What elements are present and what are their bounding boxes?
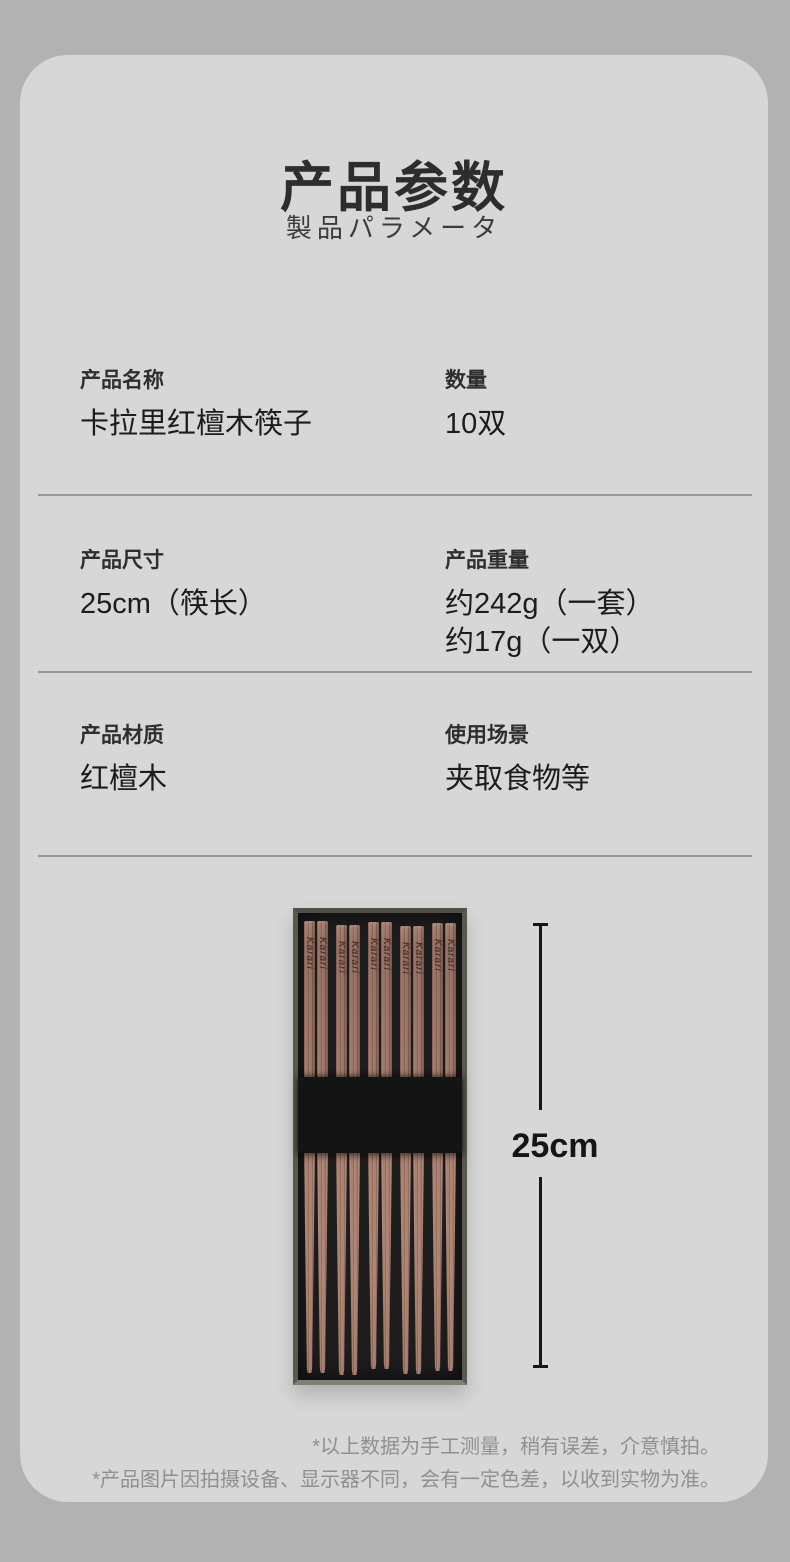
chopstick: Karari [317, 921, 328, 1083]
chopstick [368, 1151, 379, 1369]
chopstick: Karari [432, 923, 443, 1085]
chopstick-pair [368, 1151, 392, 1375]
spec-label: 产品尺寸 [80, 548, 267, 574]
brand-engraving: Karari [400, 942, 411, 975]
spec-value: 25cm（筷长） [80, 585, 267, 623]
chopstick [400, 1151, 411, 1374]
chopstick [336, 1151, 347, 1375]
brand-engraving: Karari [317, 937, 328, 970]
chopstick [317, 1151, 328, 1373]
spec-value: 夹取食物等 [445, 760, 590, 798]
spec-value: 约17g（一双） [445, 623, 655, 661]
dimension-line-lower-segment [539, 1177, 542, 1368]
chopstick-pair [336, 1151, 360, 1375]
chopstick [413, 1151, 424, 1374]
dimension-line-upper-segment [539, 923, 542, 1110]
row-divider [38, 671, 752, 673]
chopstick: Karari [304, 921, 315, 1083]
chopstick-pair: Karari Karari [368, 922, 392, 1088]
spec-cell-size: 产品尺寸 25cm（筷长） [80, 548, 267, 623]
spec-value: 卡拉里红檀木筷子 [80, 405, 312, 443]
spec-label: 使用场景 [445, 723, 590, 749]
brand-engraving: Karari [445, 939, 456, 972]
chopsticks-box: Karari Karari Karari Karari Karari Karar… [293, 908, 467, 1385]
chopsticks-handles: Karari Karari Karari Karari Karari Karar… [304, 921, 456, 1088]
chopstick: Karari [336, 925, 347, 1087]
chopstick-pair [304, 1151, 328, 1375]
spec-cell-quantity: 数量 10双 [445, 368, 506, 443]
row-divider [38, 855, 752, 857]
spec-label: 产品重量 [445, 548, 655, 574]
disclaimer-notes: *以上数据为手工测量，稍有误差，介意慎拍。 *产品图片因拍摄设备、显示器不同，会… [92, 1431, 720, 1497]
spec-value: 约242g（一套） [445, 585, 655, 623]
brand-engraving: Karari [432, 939, 443, 972]
spec-cell-material: 产品材质 红檀木 [80, 723, 167, 798]
chopstick: Karari [445, 923, 456, 1085]
dimension-line-bottom-cap [533, 1365, 548, 1368]
chopstick-pair: Karari Karari [336, 925, 360, 1088]
chopsticks-tips [304, 1151, 456, 1375]
chopstick: Karari [368, 922, 379, 1084]
spec-value: 红檀木 [80, 760, 167, 798]
spec-cell-usage: 使用场景 夹取食物等 [445, 723, 590, 798]
chopstick-pair [400, 1151, 424, 1375]
spec-label: 产品材质 [80, 723, 167, 749]
chopstick: Karari [400, 926, 411, 1088]
chopstick-pair [432, 1151, 456, 1375]
chopstick [304, 1151, 315, 1373]
brand-engraving: Karari [304, 937, 315, 970]
chopstick: Karari [349, 925, 360, 1087]
chopstick-pair: Karari Karari [432, 923, 456, 1088]
brand-engraving: Karari [381, 938, 392, 971]
brand-engraving: Karari [413, 942, 424, 975]
chopstick: Karari [413, 926, 424, 1088]
page-subtitle: 製品パラメータ [20, 208, 768, 245]
box-center-band [298, 1077, 462, 1153]
spec-value: 10双 [445, 405, 506, 443]
brand-engraving: Karari [336, 941, 347, 974]
spec-cell-weight: 产品重量 约242g（一套） 约17g（一双） [445, 548, 655, 661]
chopstick-pair: Karari Karari [304, 921, 328, 1088]
brand-engraving: Karari [349, 941, 360, 974]
chopstick [381, 1151, 392, 1369]
disclaimer-note: *产品图片因拍摄设备、显示器不同，会有一定色差，以收到实物为准。 [92, 1464, 720, 1497]
brand-engraving: Karari [368, 938, 379, 971]
chopstick [445, 1151, 456, 1371]
spec-label: 数量 [445, 368, 506, 394]
product-params-card: 产品参数 製品パラメータ 产品名称 卡拉里红檀木筷子 数量 10双 产品尺寸 2… [20, 55, 768, 1502]
row-divider [38, 494, 752, 496]
spec-label: 产品名称 [80, 368, 312, 394]
chopstick [349, 1151, 360, 1375]
chopstick: Karari [381, 922, 392, 1084]
spec-cell-product-name: 产品名称 卡拉里红檀木筷子 [80, 368, 312, 443]
chopstick [432, 1151, 443, 1371]
disclaimer-note: *以上数据为手工测量，稍有误差，介意慎拍。 [92, 1431, 720, 1464]
chopstick-pair: Karari Karari [400, 926, 424, 1088]
dimension-label: 25cm [495, 1127, 615, 1166]
